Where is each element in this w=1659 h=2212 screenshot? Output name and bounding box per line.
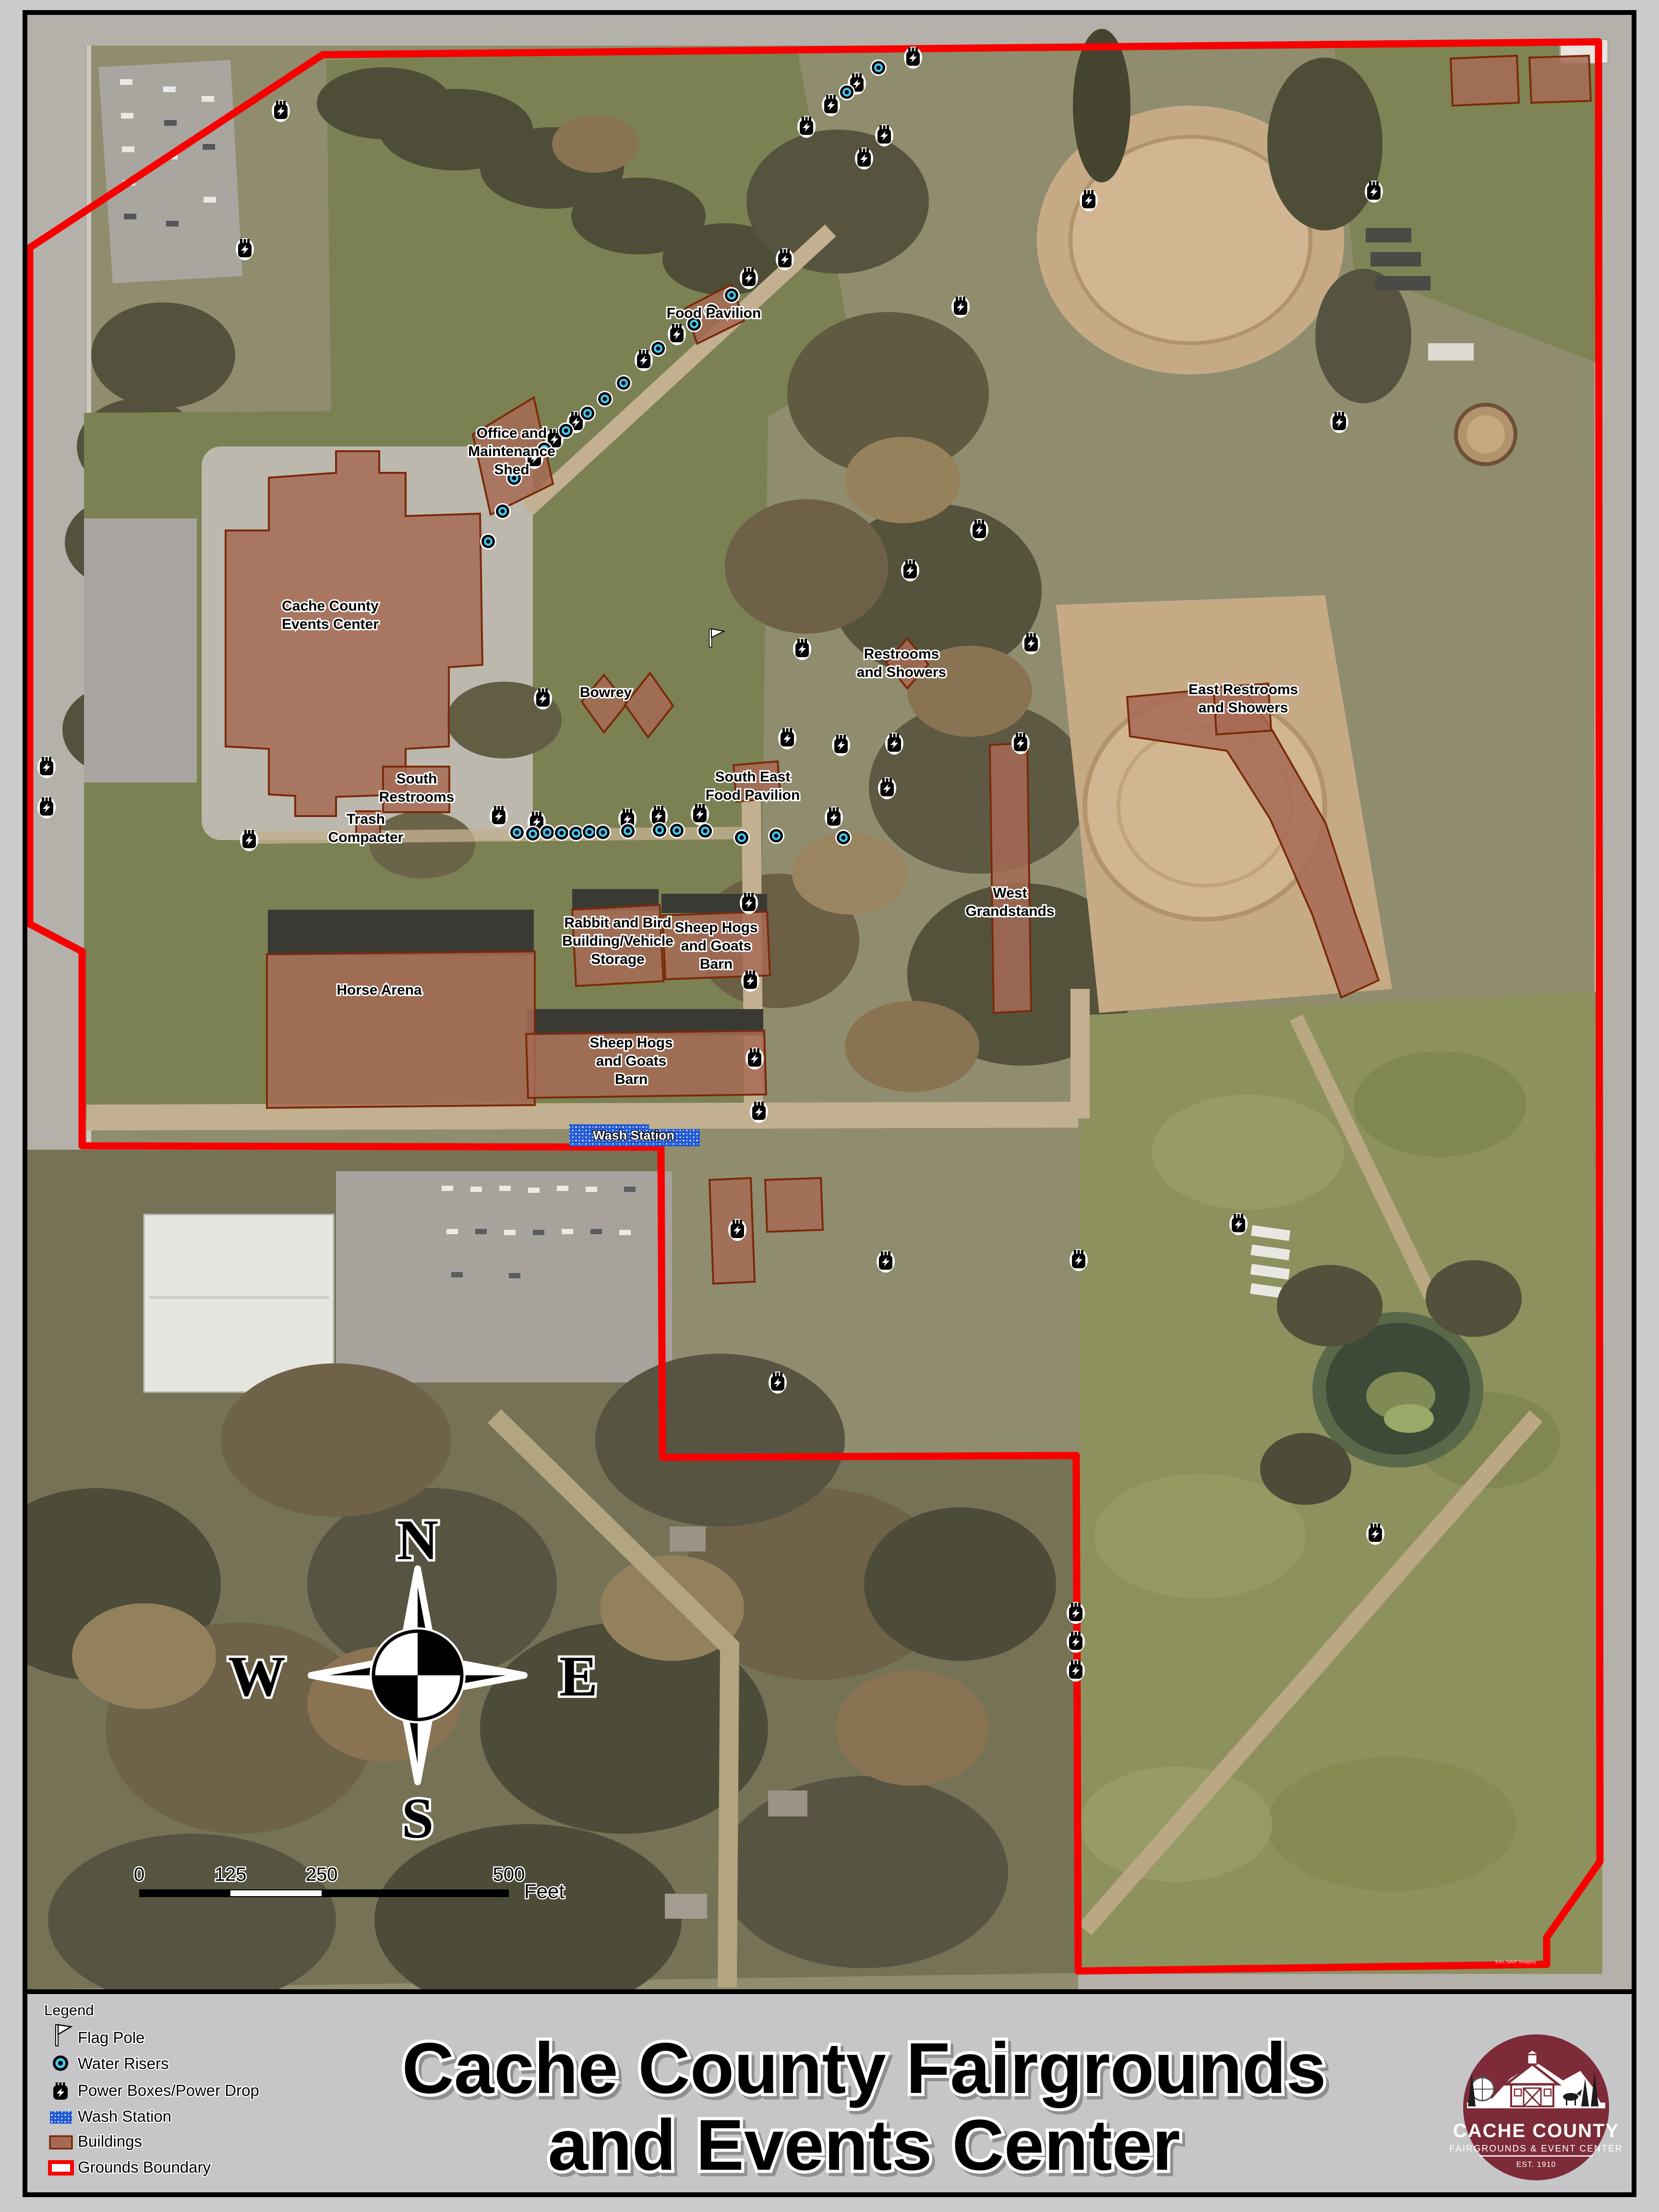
- wash-station-swatch: [50, 2111, 72, 2124]
- water-riser-icon: [480, 533, 496, 550]
- power-box-icon: [740, 892, 758, 914]
- power-box-icon: [904, 47, 922, 69]
- scale-tick-250: 250: [306, 1864, 338, 1885]
- power-box-icon: [1330, 411, 1348, 433]
- water-riser-icon: [558, 422, 574, 439]
- legend-item-label: Grounds Boundary: [78, 2158, 211, 2176]
- power-box-icon: [490, 805, 508, 827]
- legend-item-label: Flag Pole: [78, 2029, 144, 2046]
- power-box-icon: [825, 806, 843, 829]
- power-box-icon: [1022, 632, 1040, 654]
- power-box-icon: [37, 756, 56, 778]
- water-riser-icon: [839, 84, 855, 100]
- power-box-icon: [793, 638, 811, 660]
- power-box-icon: [534, 687, 552, 709]
- water-riser-icon: [553, 825, 570, 841]
- map-title-line1: Cache County Fairgrounds: [402, 2028, 1326, 2108]
- water-riser-icon: [597, 391, 613, 407]
- scale-tick-0: 0: [134, 1864, 144, 1885]
- water-riser-icon: [669, 822, 685, 839]
- map-attribution: Esri, NAIP Imagery: [1495, 1960, 1536, 1965]
- power-box-icon: [901, 559, 919, 581]
- logo-subtitle: FAIRGROUNDS & EVENT CENTER: [1450, 2144, 1623, 2154]
- water-riser-icon: [579, 405, 596, 421]
- power-box-icon: [885, 733, 903, 755]
- water-riser-icon: [620, 823, 636, 839]
- label-wash-station: Wash Station: [593, 1128, 674, 1142]
- power-box-icon: [769, 1371, 787, 1394]
- power-box-icon: [1080, 189, 1098, 211]
- power-box-icon: [691, 803, 709, 825]
- power-box-icon: [240, 829, 258, 851]
- water-riser-icon: [53, 2056, 68, 2071]
- power-box-icon: [1366, 1523, 1384, 1545]
- label-bowrey-west: Bowrey: [580, 685, 632, 700]
- power-box-icon: [878, 777, 896, 799]
- water-riser-icon: [651, 822, 668, 838]
- aerial-photo: [0, 15, 1632, 2016]
- power-box-icon: [1011, 732, 1030, 754]
- label-horse-arena: Horse Arena: [337, 982, 422, 998]
- power-box-icon: [745, 1047, 764, 1070]
- power-box-icon: [272, 100, 290, 122]
- fairgrounds-map: Wash Station Cache CountyEvents CenterOf…: [0, 0, 1659, 2212]
- building-swatch: [50, 2136, 72, 2149]
- label-food-pavilion: Food Pavilion: [667, 305, 761, 321]
- legend-item-label: Wash Station: [78, 2107, 171, 2125]
- water-riser-icon: [733, 829, 750, 846]
- scale-unit: Feet: [524, 1880, 565, 1902]
- power-box-icon: [951, 296, 970, 318]
- water-riser-icon: [525, 826, 541, 842]
- power-box-icon: [635, 349, 653, 371]
- power-box-icon: [822, 94, 840, 116]
- barn-top-right-1: [1451, 56, 1519, 106]
- power-box-icon: [728, 1219, 746, 1241]
- storage-building-b: [765, 1178, 823, 1232]
- legend-item-label: Buildings: [78, 2132, 142, 2150]
- legend-item-label: Water Risers: [78, 2055, 168, 2072]
- water-riser-icon: [650, 340, 666, 357]
- compass-n: N: [397, 1508, 439, 1572]
- compass-w: W: [228, 1644, 286, 1708]
- scale-tick-125: 125: [215, 1864, 247, 1885]
- power-box-icon: [1229, 1213, 1248, 1235]
- power-box-icon: [1070, 1249, 1088, 1271]
- power-box-icon: [970, 519, 988, 541]
- power-box-icon: [832, 734, 850, 756]
- footer-divider: [25, 1989, 1634, 1994]
- power-box-icon: [855, 147, 873, 169]
- power-box-icon: [778, 727, 796, 749]
- west-grandstands: [990, 743, 1031, 1013]
- water-riser-icon: [509, 824, 525, 841]
- barn-top-right-2: [1529, 56, 1591, 103]
- scale-tick-500: 500: [493, 1864, 525, 1885]
- power-box-icon: [1067, 1631, 1085, 1653]
- water-riser-icon: [835, 829, 852, 846]
- power-box-icon: [797, 116, 816, 138]
- water-riser-icon: [723, 287, 740, 303]
- map-sheet: Wash Station Cache CountyEvents CenterOf…: [0, 0, 1659, 2212]
- water-riser-icon: [615, 375, 632, 391]
- horse-arena: [267, 951, 535, 1108]
- power-box-icon: [776, 248, 794, 270]
- power-box-icon: [875, 124, 893, 146]
- compass-s: S: [402, 1786, 434, 1850]
- power-box-icon: [1067, 1602, 1085, 1624]
- water-riser-icon: [494, 503, 511, 519]
- water-riser-icon: [539, 824, 555, 841]
- power-box-icon: [877, 1250, 895, 1273]
- water-riser-icon: [870, 60, 887, 76]
- power-box-icon: [1067, 1659, 1085, 1682]
- water-riser-icon: [595, 824, 611, 841]
- water-riser-icon: [768, 828, 784, 844]
- legend-item-label: Power Boxes/Power Drop: [78, 2081, 259, 2099]
- power-box-icon: [741, 970, 759, 992]
- legend-title: Legend: [44, 2002, 94, 2019]
- power-box-icon: [1365, 180, 1383, 203]
- compass-e: E: [559, 1644, 598, 1708]
- logo-name: CACHE COUNTY: [1453, 2120, 1619, 2141]
- power-box-icon: [668, 323, 686, 345]
- logo-est: EST. 1910: [1516, 2161, 1556, 2169]
- map-title-line2: and Events Center: [548, 2104, 1180, 2185]
- power-box-icon: [37, 796, 56, 818]
- power-box-icon: [750, 1101, 768, 1123]
- power-box-icon: [740, 267, 758, 289]
- water-riser-icon: [697, 823, 713, 839]
- power-box-icon: [236, 238, 254, 260]
- grounds-boundary-swatch: [50, 2162, 72, 2174]
